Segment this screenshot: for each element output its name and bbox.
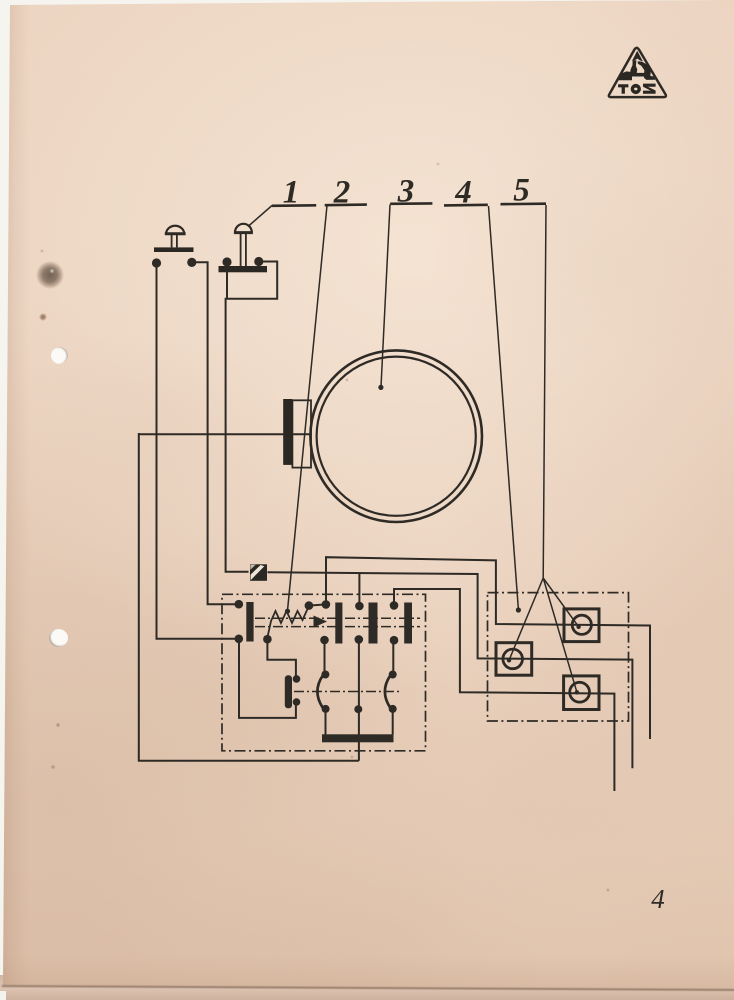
svg-text:4: 4 xyxy=(651,884,665,914)
